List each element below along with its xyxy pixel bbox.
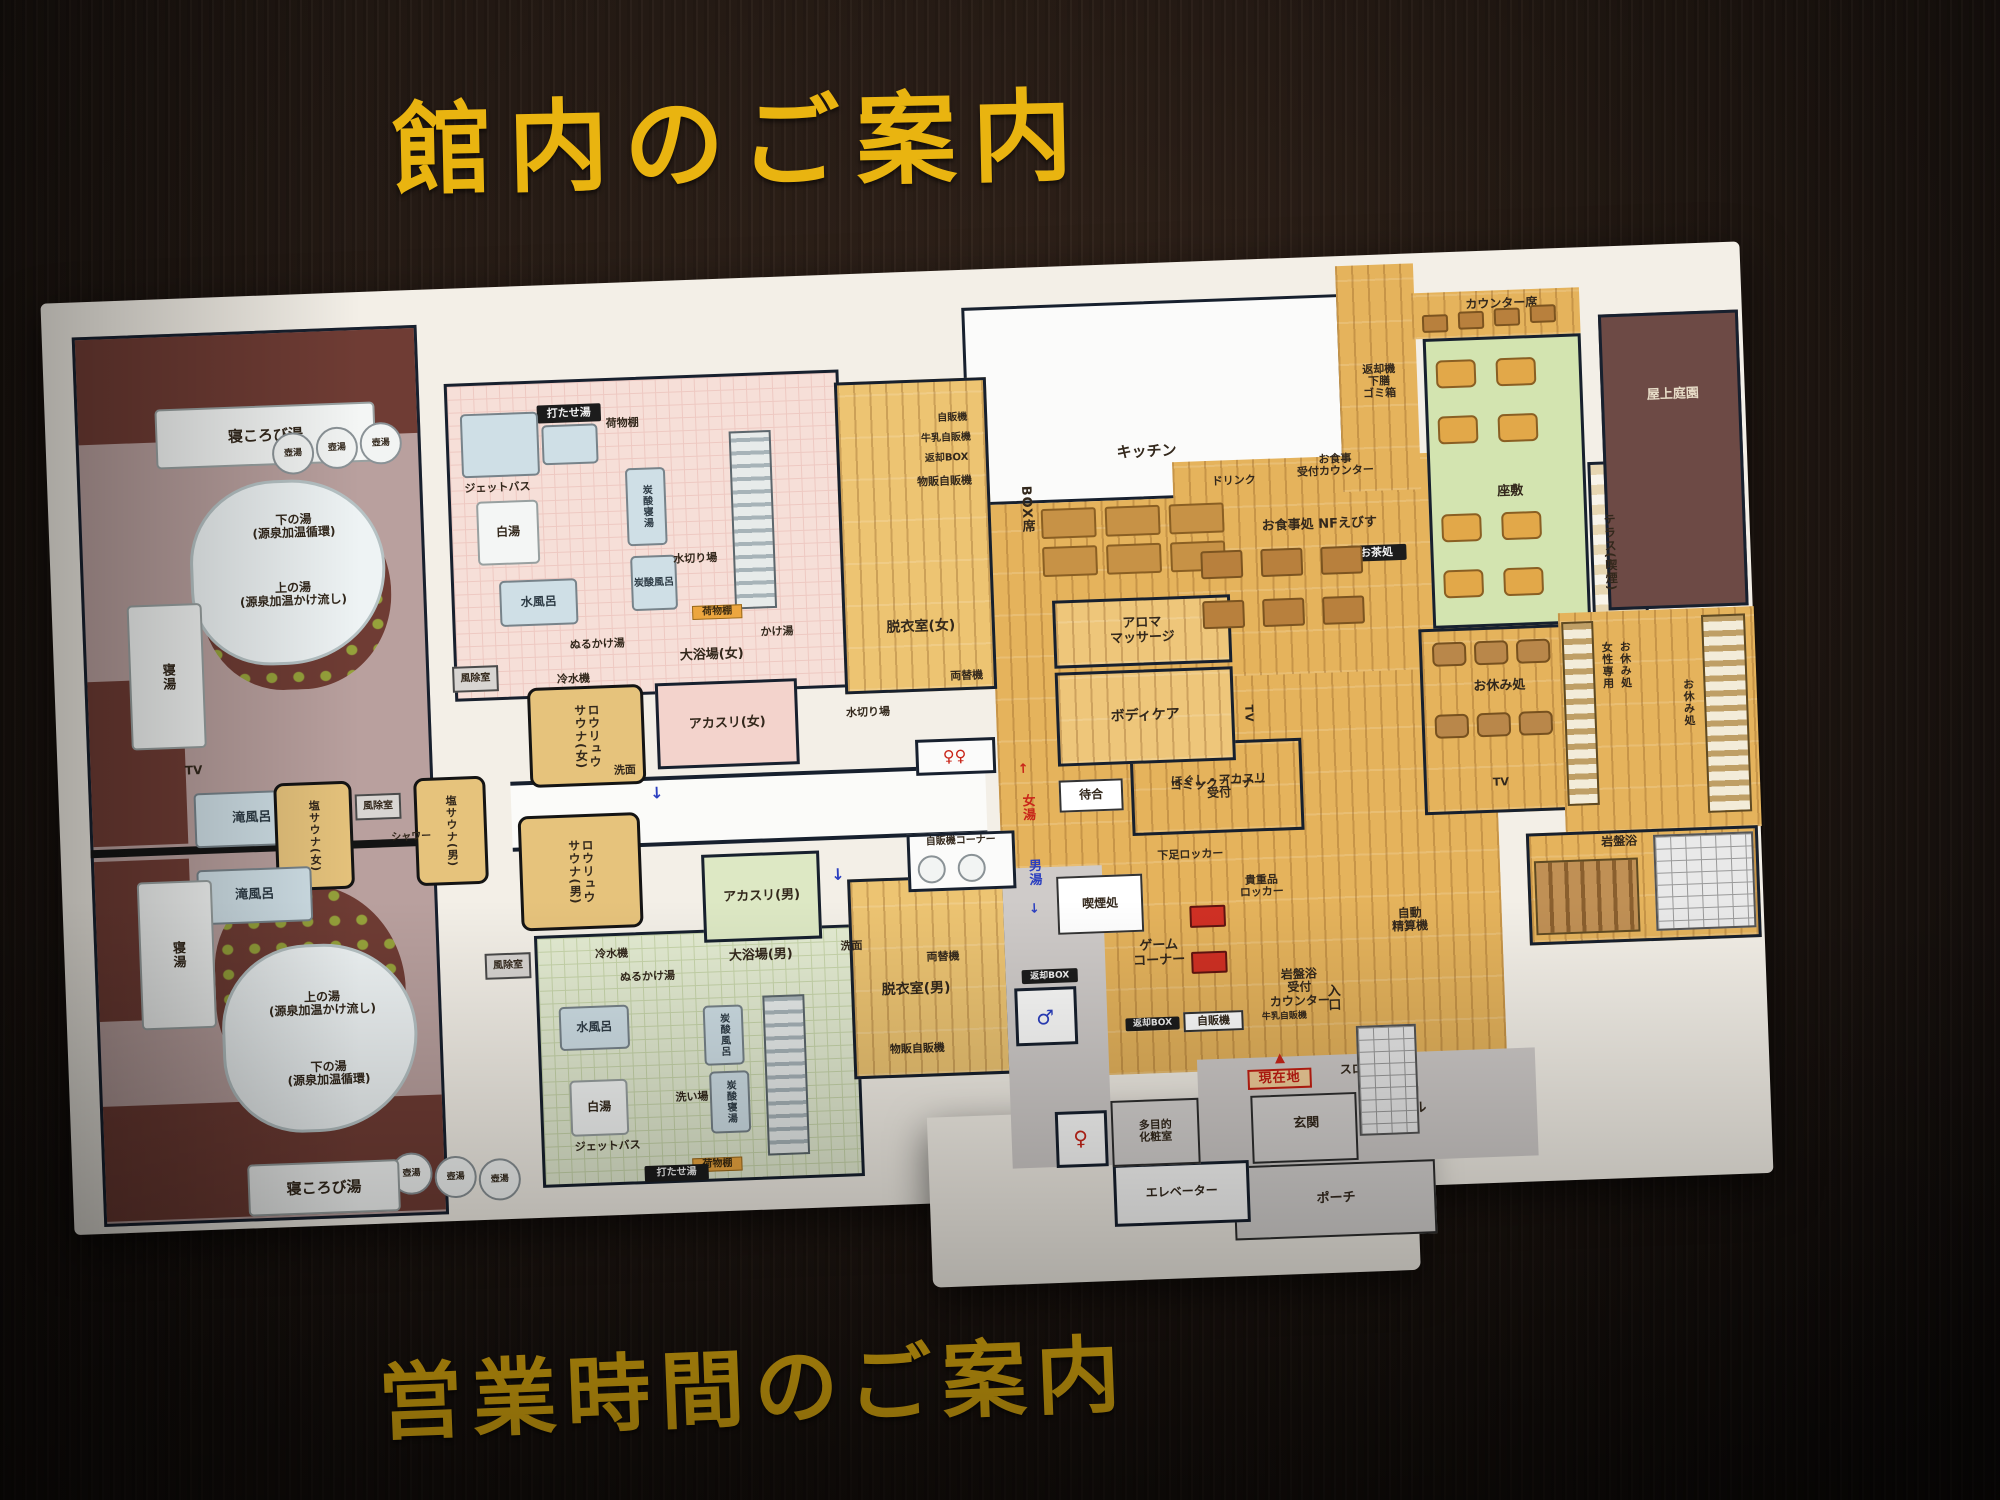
daiyokujo-women: 大浴場(女) — [666, 646, 759, 665]
fujoshitsu-1: 風除室 — [355, 793, 402, 821]
ztable-4 — [1497, 413, 1538, 442]
booth-1 — [1041, 507, 1097, 539]
fujoshitsu-3: 風除室 — [485, 952, 532, 980]
buppan-jihanki-men: 物販自販機 — [876, 1041, 958, 1058]
ctable-1 — [1422, 314, 1449, 333]
lauryl-sauna-men: ロウリュウ サウナ(男) — [518, 812, 644, 931]
bodycare-room: ボディケア — [1055, 666, 1236, 766]
toilet-blue-icon: ♂ — [1019, 996, 1072, 1038]
henkyaku-box-2: 返却BOX — [1125, 1016, 1179, 1031]
drink-label: ドリンク — [1204, 473, 1264, 489]
josei-senyo-label: 女性専用 — [1597, 624, 1616, 707]
reisuiki-men: 冷水機 — [584, 946, 638, 962]
jido-seisanki: 自動 精算機 — [1373, 903, 1446, 938]
rtable-5 — [1262, 598, 1305, 628]
porch-label: ポーチ — [1304, 1190, 1369, 1208]
shower-label: シャワー — [382, 829, 440, 845]
akasuri-men: アカスリ(男) — [701, 851, 822, 943]
genzaichi-arrow-icon: ▲ — [1271, 1050, 1290, 1067]
ztable-6 — [1501, 511, 1542, 540]
stairs-arrow-icon-1: ↓ — [646, 783, 667, 804]
sign-title-top: 館内のご案内 — [391, 55, 1090, 215]
iriguchi-label: 入口 — [1322, 972, 1342, 1023]
booth-5 — [1169, 502, 1225, 534]
mizukiriba-women: 水切り場 — [662, 551, 728, 567]
ne-yu-men: 寝湯 — [137, 880, 217, 1031]
dressing-room-women — [834, 377, 997, 694]
araiba-men: 洗い場 — [666, 1089, 718, 1105]
gesoku-locker-grid — [1356, 1024, 1420, 1136]
ryogaeki-men: 両替機 — [915, 950, 971, 965]
ctable-2 — [1458, 311, 1485, 330]
tv-outdoor-women: TV — [175, 763, 212, 780]
rest-beds-1 — [1561, 621, 1600, 806]
nimotsudana-w1: 荷物棚 — [597, 416, 647, 432]
ganbanyoku-beds-2 — [1534, 858, 1641, 936]
mizukiriba-men: 水切り場 — [834, 704, 902, 720]
ztable-8 — [1503, 567, 1544, 596]
ryogaeki-women: 両替機 — [938, 669, 994, 684]
sign-title-bottom: 営業時間のご案内 — [376, 1308, 1132, 1458]
jet-bath-women-tub — [460, 412, 540, 479]
genkan-label: 玄関 — [1276, 1115, 1337, 1133]
toilet-women-icon: ♀♀ — [917, 741, 992, 772]
recliner-3 — [1516, 639, 1551, 664]
mizuburo-men: 水風呂 — [559, 1005, 631, 1052]
vending-corner: 自販機コーナー — [908, 830, 1013, 852]
otoko-yu-marker: 男湯 — [1023, 847, 1043, 898]
arrow-down-blue-icon: ↓ — [1026, 901, 1043, 918]
ctable-3 — [1494, 307, 1521, 326]
kami-no-yu-women: 上の湯 (源泉加温かけ流し) — [209, 572, 378, 618]
jihanki-lobby: 自販機 — [1183, 1010, 1244, 1032]
onna-yu-marker: 女湯 — [1017, 780, 1037, 836]
tv-rest-area: TV — [1487, 776, 1515, 790]
senmen-women: 洗面 — [604, 764, 646, 779]
rest-beds-2 — [1701, 613, 1752, 812]
floor-plan: 寝ころび湯壺湯壺湯壺湯下の湯 (源泉加温循環)上の湯 (源泉加温かけ流し)寝湯T… — [39, 191, 1788, 1343]
fujoshitsu-2: 風除室 — [452, 665, 499, 693]
mizuburo-women: 水風呂 — [499, 578, 579, 627]
ztable-5 — [1441, 513, 1482, 542]
henkyakuki-gomibako: 返却機 下膳 ゴミ箱 — [1345, 353, 1413, 409]
shimo-no-yu-women: 下の湯 (源泉加温循環) — [218, 504, 369, 549]
ztable-1 — [1435, 359, 1476, 388]
makeup-room-label: 多目的 化粧室 — [1115, 1110, 1196, 1153]
shimo-no-yu-men: 下の湯 (源泉加温循環) — [253, 1051, 404, 1096]
buppan-jihanki-women: 物販自販機 — [903, 473, 985, 490]
kichohin-locker-2 — [1191, 951, 1228, 974]
floor-plan-panel: 寝ころび湯壺湯壺湯壺湯下の湯 (源泉加温循環)上の湯 (源泉加温かけ流し)寝湯T… — [39, 191, 1788, 1343]
sayu-men: 白湯 — [569, 1079, 629, 1137]
box-seat-label: BOX席 — [1016, 479, 1036, 540]
ne-yu-women: 寝湯 — [127, 603, 207, 751]
utase-yu-men: 打たせ湯 — [644, 1164, 709, 1182]
daiyokujo-men: 大浴場(男) — [715, 946, 808, 965]
washing-stations-men — [762, 994, 810, 1155]
tansan-buro-men: 炭酸風呂 — [703, 1004, 745, 1065]
ztable-7 — [1443, 569, 1484, 598]
utase-yu-women-tub — [541, 423, 598, 465]
toilet-red-icon: ♀ — [1057, 1115, 1105, 1161]
tsubo-yu-m2: 壺湯 — [434, 1155, 478, 1199]
kitchen-label: キッチン — [1096, 439, 1197, 463]
henkyaku-box-1: 返却BOX — [1022, 968, 1078, 984]
kitsuen-room: 喫煙処 — [1056, 874, 1144, 935]
nurukake-yu-men: ぬるかけ湯 — [605, 968, 689, 986]
booth-4 — [1106, 543, 1162, 575]
nimotsudana-w2: 荷物棚 — [692, 604, 742, 620]
utase-yu-women: 打たせ湯 — [537, 403, 602, 423]
ganbanyoku-label: 岩盤浴 — [1589, 833, 1650, 850]
jihanki-women: 自販機 — [923, 411, 981, 425]
booth-3 — [1042, 545, 1098, 577]
recliner-6 — [1518, 711, 1553, 736]
taki-buro-men: 滝風呂 — [196, 866, 313, 925]
tansan-neyu-women: 炭酸寝湯 — [625, 467, 668, 546]
oyasumidokoro-v2: お休み処 — [1679, 661, 1698, 744]
washing-stations-women — [729, 430, 777, 609]
ganbanyoku-beds — [1653, 831, 1756, 931]
kami-no-yu-men: 上の湯 (源泉加温かけ流し) — [238, 981, 407, 1027]
kichohin-locker-1 — [1189, 905, 1226, 928]
machiai-bench: 待合 — [1059, 778, 1124, 812]
ztable-2 — [1495, 357, 1536, 386]
booth-2 — [1105, 505, 1161, 537]
henkyaku-box-women: 返却BOX — [913, 451, 981, 465]
zashiki-label: 座敷 — [1488, 483, 1533, 501]
arrow-up-red-icon: ↑ — [1015, 762, 1032, 779]
nurukake-yu-women: ぬるかけ湯 — [555, 636, 639, 654]
rtable-6 — [1322, 595, 1365, 625]
stairs-arrow-icon-2: ↓ — [828, 864, 849, 885]
photo-of-facility-sign: { "header": { "title": "館内のご案内" }, "foot… — [0, 0, 2000, 1500]
ztable-3 — [1438, 415, 1479, 444]
oyasumidokoro-label: お休み処 — [1455, 677, 1544, 696]
recliner-5 — [1476, 712, 1511, 737]
shokuji-uketsuke: お食事 受付カウンター — [1269, 446, 1402, 485]
okujo-teien-label: 屋上庭園 — [1629, 384, 1718, 405]
recliner-4 — [1434, 714, 1469, 739]
sayu-women: 白湯 — [476, 500, 540, 566]
genzaichi-marker: 現在地 — [1247, 1068, 1312, 1090]
kichohin-locker-label: 貴重品 ロッカー — [1222, 868, 1301, 905]
tv-lobby: TV — [1240, 693, 1257, 734]
oyasumidokoro-v1: お休み処 — [1615, 624, 1634, 707]
rtable-4 — [1202, 600, 1245, 630]
recliner-2 — [1474, 640, 1509, 665]
akasuri-women: アカスリ(女) — [655, 678, 800, 769]
kake-yu-women: かけ湯 — [751, 624, 803, 640]
rtable-3 — [1320, 545, 1363, 575]
nekorobi-yu-men: 寝ころび湯 — [247, 1159, 401, 1217]
ctable-4 — [1529, 304, 1556, 323]
recliner-1 — [1432, 642, 1467, 667]
rtable-1 — [1200, 550, 1243, 580]
rtable-2 — [1260, 548, 1303, 578]
tsubo-yu-m3: 壺湯 — [478, 1158, 522, 1202]
senmen-men: 洗面 — [830, 940, 872, 955]
